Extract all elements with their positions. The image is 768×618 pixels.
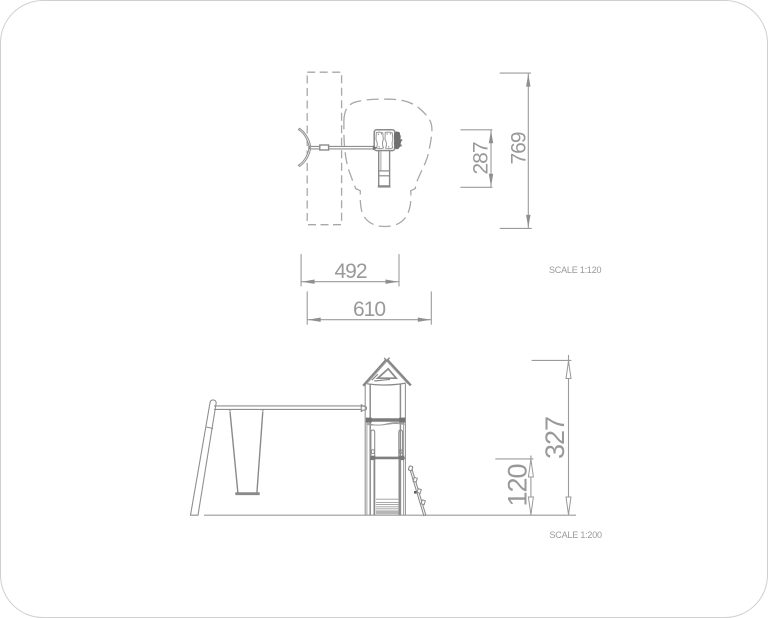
svg-text:287: 287: [470, 142, 493, 174]
svg-text:769: 769: [508, 132, 531, 164]
svg-text:327: 327: [540, 417, 570, 459]
svg-text:492: 492: [334, 260, 366, 283]
svg-text:SCALE 1:120: SCALE 1:120: [549, 265, 602, 275]
svg-text:SCALE 1:200: SCALE 1:200: [550, 530, 603, 540]
svg-text:120: 120: [503, 464, 533, 506]
svg-text:610: 610: [353, 298, 385, 321]
